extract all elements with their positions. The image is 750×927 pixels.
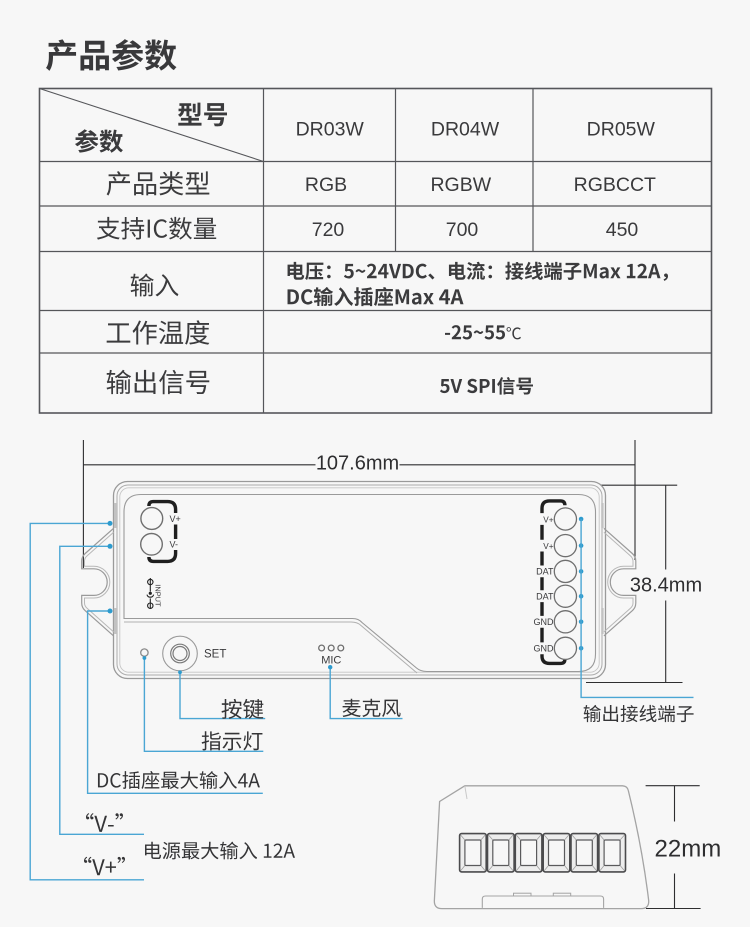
- svg-text:DAT: DAT: [536, 592, 554, 602]
- svg-text:DR04W: DR04W: [431, 119, 500, 141]
- svg-text:700: 700: [446, 219, 479, 241]
- svg-text:V+: V+: [170, 514, 181, 524]
- svg-text:RGB: RGB: [305, 174, 347, 196]
- svg-text:DR05W: DR05W: [587, 119, 656, 141]
- svg-text:107.6mm: 107.6mm: [316, 452, 399, 474]
- svg-text:V+: V+: [543, 515, 553, 524]
- svg-text:RGBCCT: RGBCCT: [574, 174, 656, 196]
- svg-text:RGBW: RGBW: [430, 174, 491, 196]
- svg-text:450: 450: [606, 219, 639, 241]
- svg-text:SET: SET: [204, 648, 226, 660]
- svg-text:22mm: 22mm: [655, 836, 722, 863]
- svg-text:DAT: DAT: [536, 567, 554, 577]
- svg-text:720: 720: [312, 219, 345, 241]
- svg-text:V-: V-: [170, 540, 179, 550]
- svg-text:GND: GND: [534, 644, 555, 654]
- svg-text:INPUT: INPUT: [153, 584, 162, 607]
- svg-text:MIC: MIC: [321, 654, 341, 666]
- svg-text:GND: GND: [534, 617, 555, 627]
- svg-text:DR03W: DR03W: [296, 119, 365, 141]
- svg-text:V+: V+: [543, 542, 553, 551]
- svg-text:38.4mm: 38.4mm: [630, 575, 702, 597]
